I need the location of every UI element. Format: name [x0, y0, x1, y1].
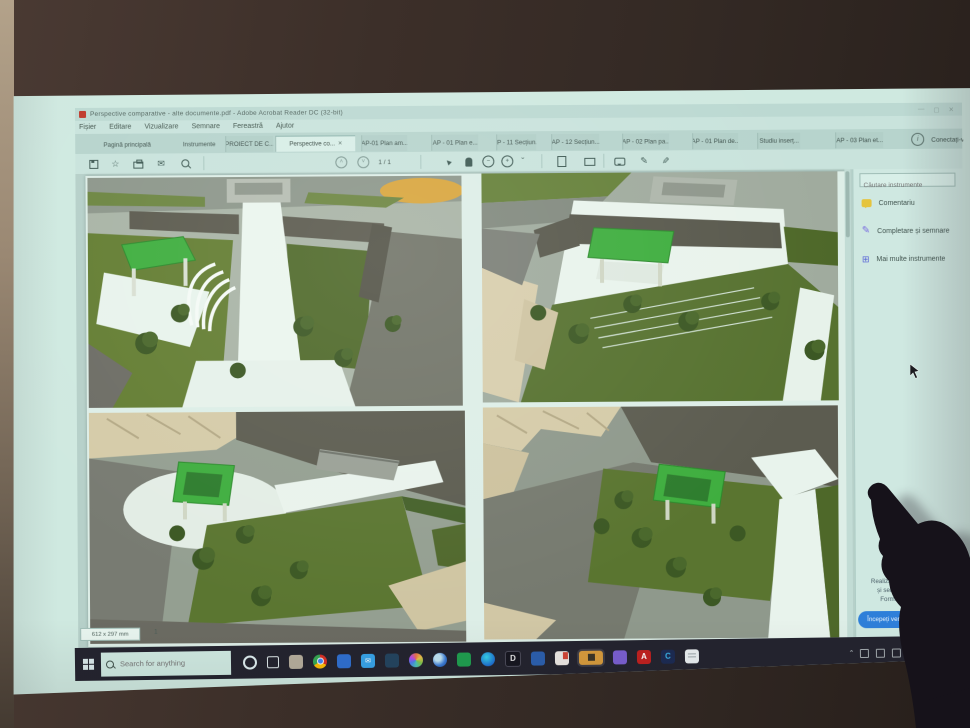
render-bottom-left — [89, 411, 466, 644]
d-app-icon[interactable]: D — [505, 650, 521, 666]
panel-item-fill-sign[interactable]: ✎ Completare și semnare — [862, 227, 950, 236]
menu-edit[interactable]: Editare — [109, 124, 131, 131]
highlight-tool-icon[interactable]: ✎ — [659, 157, 671, 165]
zoom-out-icon[interactable]: − — [482, 155, 494, 167]
email-icon[interactable]: ✉ — [157, 157, 165, 169]
tray-icon-3[interactable] — [892, 648, 901, 657]
creative-cloud-icon[interactable]: C — [661, 649, 675, 663]
maximize-button[interactable]: ▢ — [933, 105, 939, 113]
print-icon[interactable] — [133, 158, 143, 170]
tab-doc-ap01-am[interactable]: AP-01 Plan am... — [361, 135, 407, 151]
sign-in-link[interactable]: Conectați-vă — [931, 132, 963, 148]
earth-app-icon[interactable] — [433, 652, 447, 666]
render-top-left — [87, 176, 462, 408]
tab-doc-ap11[interactable]: AP - 11 Secțiun... — [496, 134, 536, 150]
star-favorites-icon[interactable]: ☆ — [111, 158, 119, 170]
menu-file[interactable]: Fișier — [79, 124, 96, 131]
tab-doc-ap12[interactable]: AP - 12 Secțiun... — [551, 134, 599, 150]
menu-sign[interactable]: Semnare — [192, 123, 220, 130]
render-bottom-right — [483, 405, 839, 639]
select-tool-icon[interactable]: ► — [444, 156, 452, 168]
taskbar-apps: ✉ D A C — [243, 648, 699, 670]
acrobat-taskbar-icon[interactable]: A — [637, 649, 651, 663]
previous-page-icon[interactable]: ˄ — [335, 156, 347, 168]
document-area — [75, 169, 965, 648]
mail-app-icon[interactable]: ✉ — [361, 653, 375, 667]
menu-bar: Fișier Editare Vizualizare Semnare Ferea… — [79, 120, 294, 134]
menu-view[interactable]: Vizualizare — [144, 123, 178, 130]
tab-doc-ap01-e[interactable]: AP - 01 Plan e... — [431, 135, 478, 151]
red-doc-app-icon[interactable] — [555, 651, 569, 665]
word-icon[interactable] — [531, 651, 545, 665]
next-page-icon[interactable]: ˅ — [357, 156, 369, 168]
close-button[interactable]: ✕ — [949, 105, 955, 113]
tab-doc-perspective-active[interactable]: Perspective co... × — [275, 135, 355, 151]
more-tools-icon: ⊞ — [862, 255, 870, 264]
chrome-icon[interactable] — [313, 654, 327, 668]
scrollbar-thumb[interactable] — [845, 171, 849, 237]
start-button[interactable] — [83, 659, 94, 670]
vault-app-icon[interactable] — [289, 654, 303, 668]
page-indicator: 1 / 1 — [378, 156, 391, 168]
cortana-icon[interactable] — [243, 655, 257, 669]
green-app-icon[interactable] — [457, 652, 471, 666]
zoom-level-dropdown[interactable]: ˇ — [521, 155, 524, 167]
tab-tools[interactable]: Instrumente — [173, 136, 225, 152]
movies-app-icon[interactable] — [385, 653, 399, 667]
tools-search-box[interactable] — [859, 173, 955, 188]
promo-line: Realizați conversia fișierelor — [858, 577, 961, 587]
pdf-page[interactable] — [85, 171, 848, 647]
acrobat-app-icon — [79, 111, 86, 118]
mouse-cursor — [910, 364, 922, 380]
tools-search-input[interactable] — [860, 179, 960, 192]
purple-app-icon[interactable] — [613, 650, 627, 664]
menu-help[interactable]: Ajutor — [276, 123, 294, 130]
edge-icon[interactable] — [481, 652, 495, 666]
tab-doc-ap02[interactable]: AP - 02 Plan pa... — [622, 133, 669, 149]
tab-doc-studiu[interactable]: Studiu inserț... — [757, 133, 800, 149]
tray-icon-1[interactable] — [860, 649, 869, 658]
photo-of-projected-screen: Perspective comparative - alte documente… — [0, 0, 970, 728]
tray-icon-2[interactable] — [876, 649, 885, 658]
page-number-label: 1 — [154, 630, 157, 636]
panel-item-comment[interactable]: Comentariu — [862, 199, 915, 207]
system-tray: ˆ ENG US — [850, 646, 970, 660]
panel-item-more-tools[interactable]: ⊞ Mai multe instrumente — [862, 255, 945, 265]
maps-app-icon[interactable] — [337, 654, 351, 668]
free-trial-button[interactable]: Începeți versiunea de încercare — [858, 611, 962, 629]
search-icon — [106, 660, 114, 668]
promo-line: Formulare și acorduri — [858, 595, 961, 605]
title-bar: Perspective comparative - alte documente… — [75, 103, 962, 121]
photos-app-icon[interactable] — [409, 653, 423, 667]
notepad-icon[interactable] — [685, 649, 699, 663]
wall-edge — [0, 0, 14, 728]
render-top-right — [481, 171, 838, 402]
info-icon[interactable]: i — [911, 133, 924, 146]
tab-close-icon[interactable]: × — [338, 140, 342, 147]
fill-sign-tool-icon[interactable]: ✎ — [640, 155, 648, 167]
hand-tool-icon[interactable] — [465, 156, 472, 168]
save-icon[interactable] — [89, 158, 98, 170]
window-title: Perspective comparative - alte documente… — [90, 109, 343, 118]
projection-screen: Perspective comparative - alte documente… — [0, 0, 970, 728]
tab-doc-proiect[interactable]: PROIECT DE C... — [225, 136, 273, 152]
tab-home[interactable]: Pagină principală — [89, 136, 165, 152]
page-size-label: 612 x 297 mm — [80, 628, 140, 641]
language-indicator[interactable]: ENG US — [924, 646, 936, 658]
taskbar-search-box[interactable] — [101, 650, 231, 676]
tools-panel: Comentariu ✎ Completare și semnare ⊞ Mai… — [852, 169, 965, 644]
active-app-icon[interactable] — [579, 650, 603, 664]
comment-tool-icon[interactable] — [614, 155, 625, 167]
menu-window[interactable]: Fereastră — [233, 123, 263, 130]
trial-promo: Realizați conversia fișierelor și semnaț… — [858, 577, 961, 634]
tab-doc-ap01-de[interactable]: AP - 01 Plan de... — [692, 133, 738, 149]
acrobat-window: Perspective comparative - alte documente… — [75, 103, 965, 648]
page-view-icon[interactable] — [557, 155, 566, 167]
minimize-button[interactable]: — — [918, 105, 925, 113]
search-icon[interactable] — [181, 157, 189, 169]
tray-chevron-icon[interactable]: ˆ — [850, 651, 853, 657]
task-view-icon[interactable] — [267, 656, 279, 668]
comment-bubble-icon — [862, 199, 872, 207]
fullscreen-icon[interactable] — [584, 155, 595, 167]
tab-doc-ap03[interactable]: AP - 03 Plan et... — [835, 132, 883, 148]
fill-sign-pen-icon: ✎ — [862, 227, 870, 235]
tray-icon-4[interactable] — [908, 648, 917, 657]
zoom-in-icon[interactable]: + — [501, 155, 513, 167]
taskbar-search-input[interactable] — [118, 657, 226, 670]
